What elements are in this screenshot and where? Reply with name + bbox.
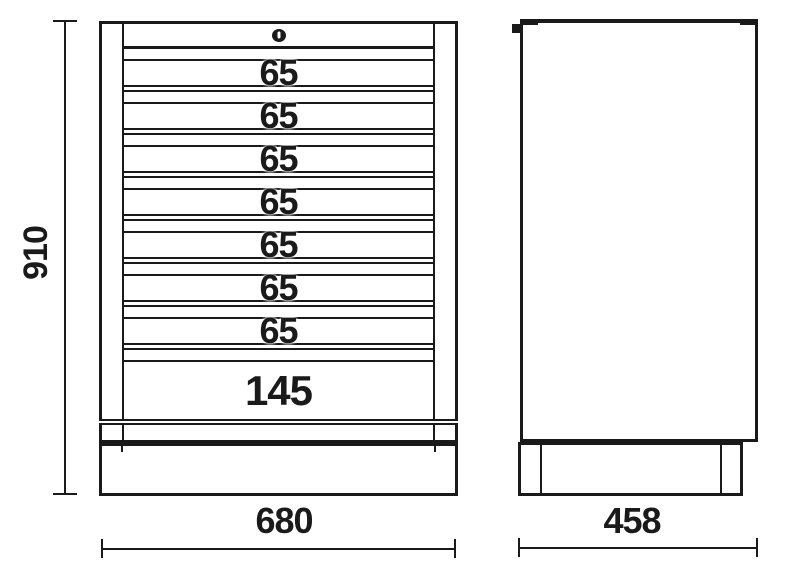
front-top-panel <box>124 24 433 49</box>
drawer-label: 65 <box>259 141 297 177</box>
drawer-label: 65 <box>259 270 297 306</box>
side-depth-dimension-label: 458 <box>603 503 660 539</box>
drawer-face-large: 145 <box>124 362 433 420</box>
drawer-rail <box>124 350 433 362</box>
front-drawer-stack: 65 65 65 65 65 65 65 145 <box>124 24 433 440</box>
front-width-dimension-line <box>102 548 455 550</box>
front-bottom-separator-line <box>99 419 458 425</box>
drawer-label: 65 <box>259 313 297 349</box>
drawer-face: 65 <box>124 61 433 87</box>
side-depth-dimension-line <box>519 547 758 549</box>
drawer-face: 65 <box>124 147 433 173</box>
side-handle-nub <box>512 24 520 33</box>
drawer-face: 65 <box>124 104 433 130</box>
lock-icon <box>272 29 286 42</box>
front-view-cabinet: 65 65 65 65 65 65 65 145 <box>99 21 458 443</box>
drawer-label: 145 <box>245 370 312 412</box>
side-base-plinth <box>518 442 743 496</box>
height-dimension-label: 910 <box>19 226 53 280</box>
front-left-frame-column <box>102 24 124 440</box>
drawer-face: 65 <box>124 319 433 345</box>
drawer-label: 65 <box>259 98 297 134</box>
drawer-face: 65 <box>124 233 433 259</box>
drawer-label: 65 <box>259 55 297 91</box>
front-right-frame-column <box>433 24 455 440</box>
side-base-front-foot-line <box>540 445 542 493</box>
drawer-label: 65 <box>259 184 297 220</box>
front-width-dimension-label: 680 <box>255 503 312 539</box>
front-base-right-stub <box>434 446 436 452</box>
side-top-back-lip <box>740 19 758 25</box>
front-base-plinth <box>99 443 458 496</box>
technical-drawing-canvas: 910 65 65 65 65 65 65 <box>0 0 800 579</box>
side-top-front-lip <box>520 19 538 25</box>
drawer-face: 65 <box>124 276 433 302</box>
side-depth-right-tick <box>756 538 758 557</box>
drawer-label: 65 <box>259 227 297 263</box>
drawer-face: 65 <box>124 190 433 216</box>
height-dimension-line <box>64 21 66 495</box>
side-view-body <box>520 19 758 442</box>
front-base-left-stub <box>121 446 123 452</box>
height-dimension-bottom-tick <box>53 493 77 495</box>
front-width-right-tick <box>454 539 456 558</box>
side-base-back-foot-line <box>720 445 722 493</box>
